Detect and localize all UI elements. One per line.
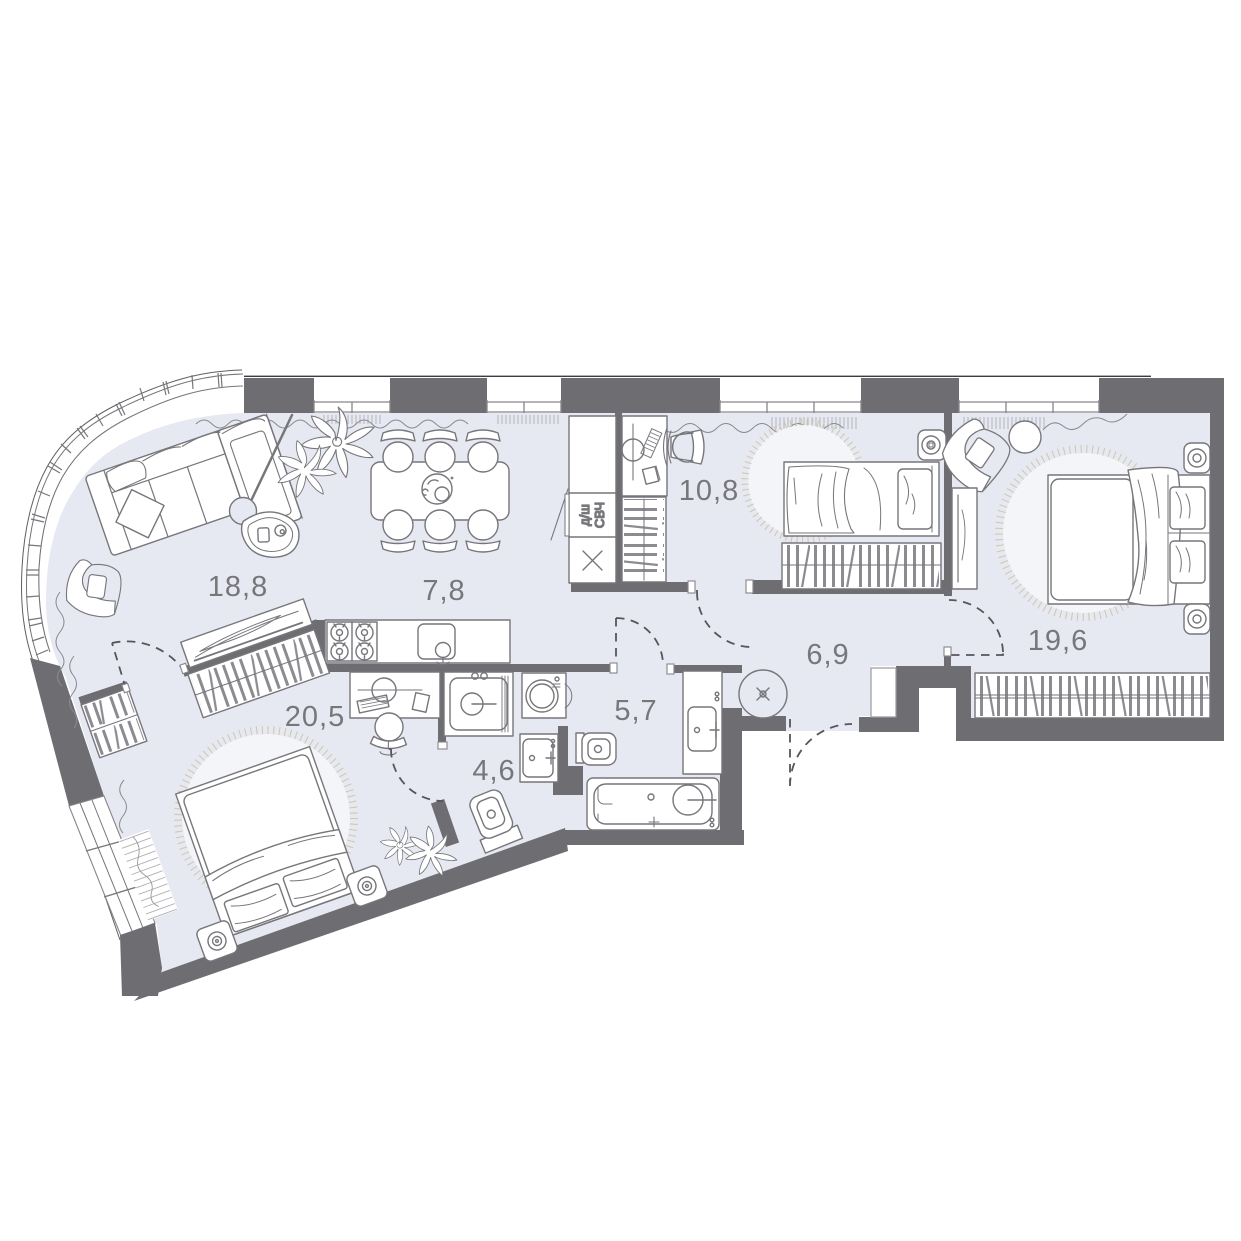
svg-text:20,5: 20,5 [285,701,345,733]
svg-text:5,7: 5,7 [614,695,657,727]
svg-text:7,8: 7,8 [422,575,465,607]
svg-text:4,6: 4,6 [472,755,515,787]
svg-text:6,9: 6,9 [806,639,849,671]
svg-text:д/ш: д/ш [577,504,592,526]
svg-text:СВЧ: СВЧ [592,502,607,528]
svg-text:10,8: 10,8 [679,475,739,507]
svg-text:19,6: 19,6 [1028,625,1088,657]
svg-text:18,8: 18,8 [208,571,268,603]
